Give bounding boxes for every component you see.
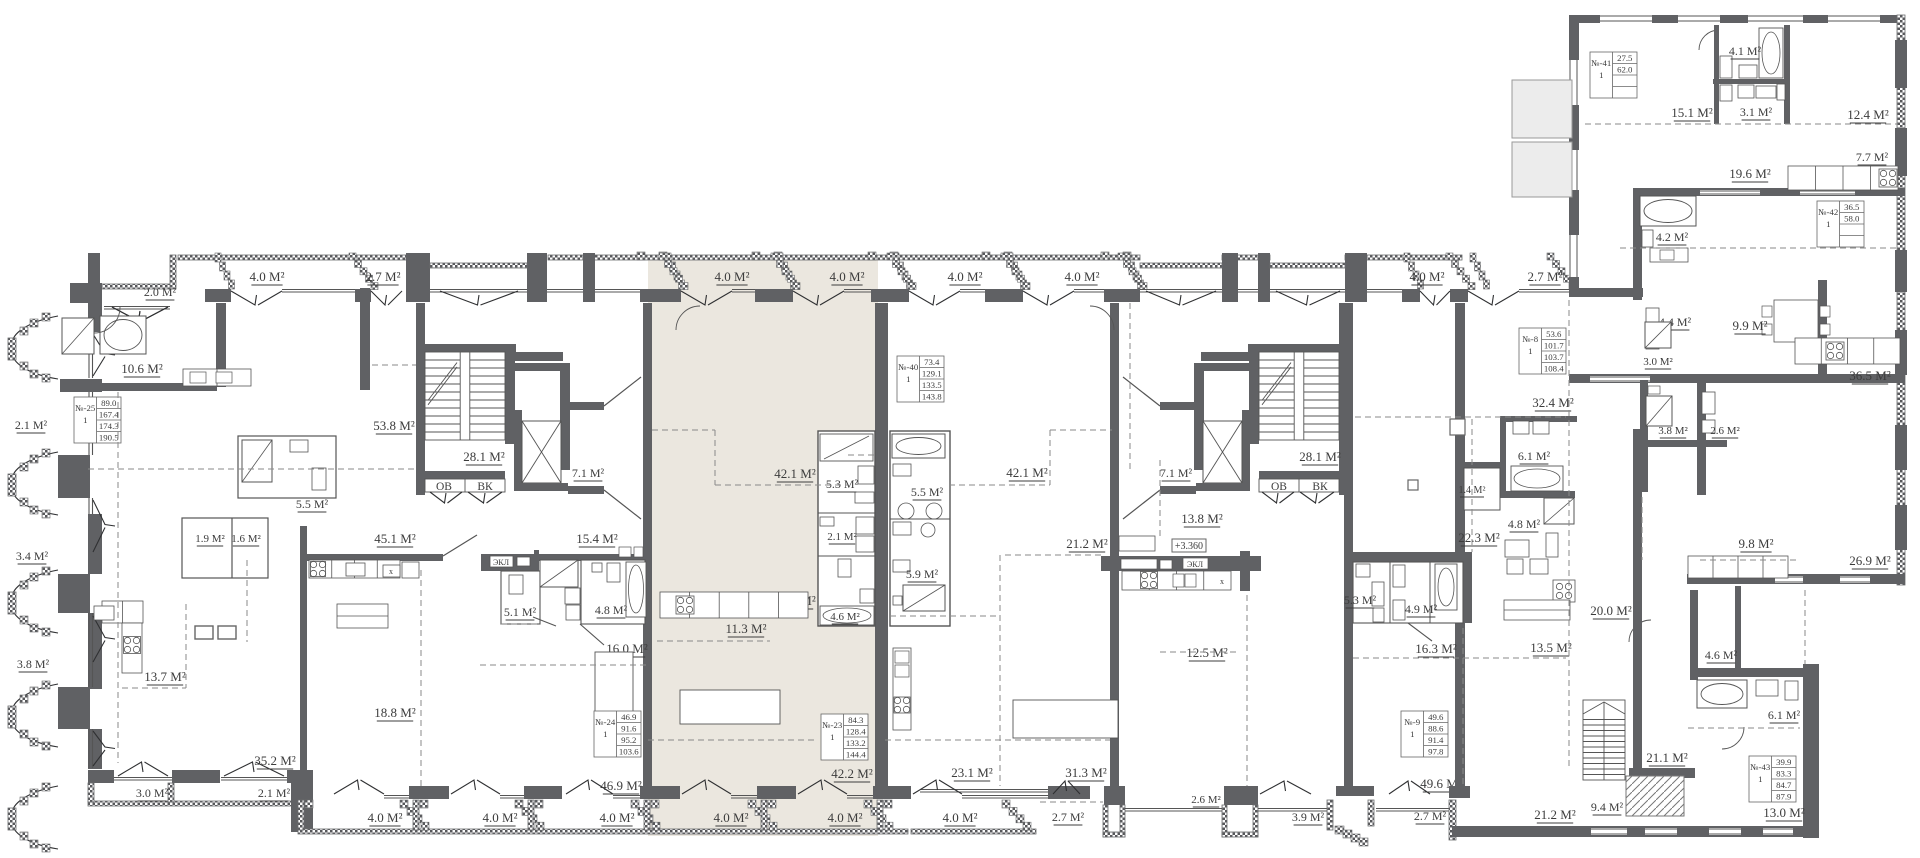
svg-text:87.9: 87.9: [1776, 792, 1792, 802]
svg-text:4.0 М²: 4.0 М²: [368, 810, 403, 825]
svg-text:4.0 М²: 4.0 М²: [1065, 269, 1100, 284]
svg-text:53.8 М²: 53.8 М²: [373, 418, 415, 433]
svg-text:167.4: 167.4: [99, 410, 119, 420]
svg-text:19.6 М²: 19.6 М²: [1729, 166, 1771, 181]
svg-text:4.0 М²: 4.0 М²: [714, 810, 749, 825]
svg-text:4.0 М²: 4.0 М²: [828, 810, 863, 825]
svg-text:+3.360: +3.360: [1175, 541, 1203, 552]
svg-text:103.6: 103.6: [619, 747, 639, 757]
svg-text:190.5: 190.5: [99, 433, 119, 443]
svg-text:133.2: 133.2: [846, 738, 866, 748]
svg-text:12.4 М²: 12.4 М²: [1847, 107, 1889, 122]
svg-text:ОВ: ОВ: [436, 481, 452, 493]
svg-text:4.0 М²: 4.0 М²: [250, 269, 285, 284]
svg-text:46.9: 46.9: [621, 712, 637, 722]
svg-text:35.2 М²: 35.2 М²: [254, 753, 296, 768]
svg-text:№-41: №-41: [1591, 58, 1611, 68]
svg-text:ВК: ВК: [1312, 481, 1328, 493]
svg-text:91.6: 91.6: [621, 724, 637, 734]
svg-text:133.5: 133.5: [922, 380, 942, 390]
svg-text:3.0 М²: 3.0 М²: [1643, 356, 1673, 368]
svg-text:ВК: ВК: [477, 481, 493, 493]
svg-text:4.0 М²: 4.0 М²: [943, 810, 978, 825]
svg-text:1: 1: [603, 729, 607, 739]
svg-text:7.7 М²: 7.7 М²: [1856, 150, 1889, 164]
svg-text:4.6 М²: 4.6 М²: [1705, 648, 1738, 662]
svg-text:83.3: 83.3: [1776, 769, 1792, 779]
svg-text:174.3: 174.3: [99, 421, 119, 431]
svg-text:58.0: 58.0: [1844, 214, 1860, 224]
svg-text:3.1 М²: 3.1 М²: [1740, 105, 1773, 119]
svg-text:45.1 М²: 45.1 М²: [374, 531, 416, 546]
svg-text:21.2 М²: 21.2 М²: [1534, 807, 1576, 822]
svg-text:1: 1: [1528, 346, 1532, 356]
svg-text:21.1 М²: 21.1 М²: [1646, 750, 1688, 765]
svg-text:4.0 М²: 4.0 М²: [830, 269, 865, 284]
svg-text:ЭКЛ: ЭКЛ: [1187, 560, 1204, 569]
svg-text:10.6 М²: 10.6 М²: [121, 361, 163, 376]
svg-text:2.0 М²: 2.0 М²: [144, 285, 177, 299]
svg-text:13.7 М²: 13.7 М²: [144, 669, 186, 684]
svg-text:13.0 М²: 13.0 М²: [1763, 805, 1805, 820]
svg-text:1: 1: [1758, 774, 1762, 784]
svg-text:1: 1: [1826, 219, 1830, 229]
svg-text:88.6: 88.6: [1428, 724, 1444, 734]
svg-text:3.8 М²: 3.8 М²: [17, 657, 50, 671]
svg-text:№-25: №-25: [75, 403, 96, 413]
svg-text:3.4 М²: 3.4 М²: [16, 549, 49, 563]
svg-text:27.5: 27.5: [1617, 53, 1633, 63]
svg-text:28.1 М²: 28.1 М²: [463, 449, 505, 464]
svg-text:4.1 М²: 4.1 М²: [1729, 44, 1762, 58]
svg-text:42.1 М²: 42.1 М²: [774, 466, 816, 481]
svg-text:3.0 М²: 3.0 М²: [136, 786, 169, 800]
svg-text:1.9 М²: 1.9 М²: [195, 533, 225, 545]
svg-text:97.8: 97.8: [1428, 747, 1444, 757]
svg-text:46.9 М²: 46.9 М²: [600, 778, 642, 793]
svg-text:128.4: 128.4: [846, 727, 866, 737]
svg-text:x: x: [1220, 577, 1224, 586]
svg-text:13.5 М²: 13.5 М²: [1530, 640, 1572, 655]
svg-text:1: 1: [83, 415, 87, 425]
svg-text:6.1 М²: 6.1 М²: [1518, 449, 1551, 463]
svg-text:42.2 М²: 42.2 М²: [831, 766, 873, 781]
svg-text:ОВ: ОВ: [1271, 481, 1287, 493]
svg-text:32.4 М²: 32.4 М²: [1532, 395, 1574, 410]
svg-text:62.0: 62.0: [1617, 65, 1633, 75]
svg-text:4.0 М²: 4.0 М²: [948, 269, 983, 284]
svg-text:1.6 М²: 1.6 М²: [231, 533, 261, 545]
svg-text:5.5 М²: 5.5 М²: [911, 485, 944, 499]
svg-text:9.4 М²: 9.4 М²: [1591, 800, 1624, 814]
svg-text:4.0 М²: 4.0 М²: [483, 810, 518, 825]
svg-text:7.1 М²: 7.1 М²: [1160, 466, 1193, 480]
svg-text:№-42: №-42: [1818, 207, 1838, 217]
svg-text:№-24: №-24: [595, 717, 616, 727]
svg-text:2.6 М²: 2.6 М²: [1191, 794, 1221, 806]
svg-text:№-9: №-9: [1404, 717, 1420, 727]
svg-text:4.0 М²: 4.0 М²: [1410, 269, 1445, 284]
svg-text:129.1: 129.1: [922, 369, 942, 379]
svg-text:53.6: 53.6: [1546, 329, 1562, 339]
svg-text:73.4: 73.4: [924, 357, 940, 367]
svg-text:1: 1: [1599, 70, 1603, 80]
svg-text:16.3 М²: 16.3 М²: [1415, 641, 1457, 656]
svg-text:144.4: 144.4: [846, 750, 866, 760]
svg-text:5.5 М²: 5.5 М²: [296, 497, 329, 511]
svg-text:4.0 М²: 4.0 М²: [600, 810, 635, 825]
svg-text:21.2 М²: 21.2 М²: [1066, 536, 1108, 551]
svg-text:2.6 М²: 2.6 М²: [1710, 425, 1740, 437]
svg-text:18.8 М²: 18.8 М²: [374, 705, 416, 720]
svg-text:№-23: №-23: [822, 720, 843, 730]
svg-text:15.4 М²: 15.4 М²: [576, 531, 618, 546]
svg-text:x: x: [389, 567, 393, 576]
svg-text:26.9 М²: 26.9 М²: [1849, 553, 1891, 568]
svg-text:39.9: 39.9: [1776, 757, 1792, 767]
svg-text:5.9 М²: 5.9 М²: [906, 567, 939, 581]
svg-text:95.2: 95.2: [621, 735, 636, 745]
svg-text:11.3 М²: 11.3 М²: [726, 621, 767, 636]
svg-text:2.7 М²: 2.7 М²: [366, 269, 401, 284]
svg-text:42.1 М²: 42.1 М²: [1006, 465, 1048, 480]
svg-text:101.7: 101.7: [1544, 341, 1564, 351]
svg-text:143.8: 143.8: [922, 392, 942, 402]
svg-text:22.3 М²: 22.3 М²: [1458, 530, 1500, 545]
svg-text:2.7 М²: 2.7 М²: [1528, 269, 1563, 284]
svg-text:28.1 М²: 28.1 М²: [1299, 449, 1341, 464]
svg-text:4.2 М²: 4.2 М²: [1656, 230, 1689, 244]
svg-text:ЭКЛ: ЭКЛ: [493, 558, 510, 567]
svg-text:3.9 М²: 3.9 М²: [1292, 810, 1325, 824]
svg-text:4.0 М²: 4.0 М²: [715, 269, 750, 284]
svg-text:84.3: 84.3: [848, 715, 864, 725]
svg-text:5.3 М²: 5.3 М²: [826, 477, 859, 491]
svg-text:36.5 М²: 36.5 М²: [1849, 368, 1891, 383]
svg-text:№-40: №-40: [898, 362, 919, 372]
svg-text:1: 1: [1410, 729, 1414, 739]
svg-text:20.0 М²: 20.0 М²: [1590, 603, 1632, 618]
svg-text:2.7 М²: 2.7 М²: [1414, 809, 1447, 823]
svg-text:№-43: №-43: [1750, 762, 1771, 772]
svg-text:5.1 М²: 5.1 М²: [504, 605, 537, 619]
svg-text:2.7 М²: 2.7 М²: [1052, 810, 1085, 824]
svg-text:2.1 М²: 2.1 М²: [15, 418, 48, 432]
svg-text:108.4: 108.4: [1544, 364, 1564, 374]
svg-text:15.1 М²: 15.1 М²: [1671, 105, 1713, 120]
svg-text:№-8: №-8: [1522, 334, 1538, 344]
svg-text:91.4: 91.4: [1428, 735, 1444, 745]
svg-text:31.3 М²: 31.3 М²: [1065, 765, 1107, 780]
svg-text:1: 1: [906, 374, 910, 384]
svg-text:4.9 М²: 4.9 М²: [1405, 602, 1438, 616]
svg-text:4.6 М²: 4.6 М²: [830, 611, 860, 623]
svg-text:2.1 М²: 2.1 М²: [258, 786, 291, 800]
svg-text:3.8 М²: 3.8 М²: [1658, 425, 1688, 437]
svg-text:36.5: 36.5: [1844, 202, 1860, 212]
svg-text:2.1 М²: 2.1 М²: [827, 531, 857, 543]
svg-text:84.7: 84.7: [1776, 780, 1792, 790]
svg-text:9.9 М²: 9.9 М²: [1733, 318, 1768, 333]
svg-text:49.6: 49.6: [1428, 712, 1444, 722]
svg-text:23.1 М²: 23.1 М²: [951, 765, 993, 780]
svg-text:13.8 М²: 13.8 М²: [1181, 511, 1223, 526]
svg-text:9.8 М²: 9.8 М²: [1739, 536, 1774, 551]
svg-text:1: 1: [830, 732, 834, 742]
svg-text:4.8 М²: 4.8 М²: [595, 603, 628, 617]
svg-text:89.0: 89.0: [101, 398, 117, 408]
svg-text:103.7: 103.7: [1544, 352, 1564, 362]
svg-text:6.1 М²: 6.1 М²: [1768, 708, 1801, 722]
svg-text:5.3 М²: 5.3 М²: [1344, 593, 1377, 607]
svg-text:4.8 М²: 4.8 М²: [1508, 517, 1541, 531]
svg-text:7.1 М²: 7.1 М²: [572, 466, 605, 480]
